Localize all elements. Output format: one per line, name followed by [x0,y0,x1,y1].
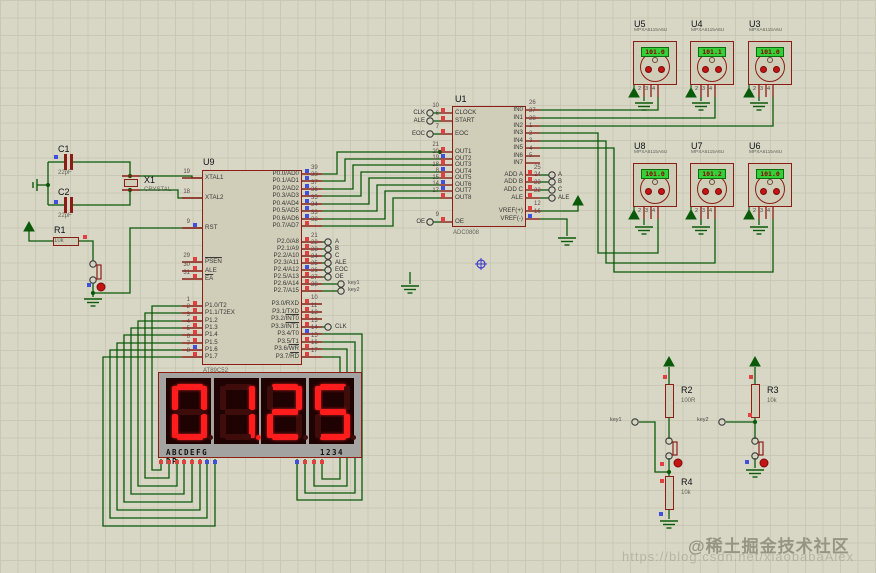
pin-number: 1 [529,123,532,129]
pin-state-square [295,460,299,464]
pin-state-square [167,460,171,464]
sensor-inc-dot[interactable] [715,188,722,195]
pin-name: P1.1/T2EX [205,310,235,316]
sensor-pin-label: 2 [695,209,698,215]
resistor-value-r3: 10k [767,398,777,404]
pin-state-square [305,237,309,241]
pin-number: 9 [166,219,190,225]
pin-state-square [528,185,532,189]
cap-value-c1: 22pF [58,170,72,176]
pin-name: XTAL2 [205,195,223,201]
pin-state-square [193,266,197,270]
pin-state-square [305,221,309,225]
pin-number: 25 [534,165,541,171]
pin-name: START [455,118,475,124]
sensor-pin-label: 2 [753,87,756,93]
pin-state-square [663,375,667,379]
segment-DP [256,435,261,440]
pin-number: 2 [166,304,190,310]
terminal[interactable] [719,419,725,425]
sensor-part-u6: MPXA6115A6U [749,151,782,156]
push-button[interactable] [759,442,763,455]
terminal[interactable] [325,324,331,330]
cap-value-c2: 22pF [58,213,72,219]
push-button-actuator[interactable] [674,459,682,467]
terminal[interactable] [325,267,331,273]
terminal[interactable] [549,195,555,201]
pin-state-square [193,323,197,327]
pin-state-square [305,184,309,188]
sensor-pin-label: 3 [702,209,705,215]
wire [540,205,578,211]
pin-number: 15 [311,333,318,339]
pin-number: 3 [166,312,190,318]
pin-number: 27 [529,108,536,114]
push-button[interactable] [673,442,677,455]
terminal[interactable] [325,246,331,252]
pin-name: IN7 [478,160,523,166]
pin-state-square [305,244,309,248]
segment-B [296,386,302,410]
wire [73,190,130,205]
wire [93,228,202,293]
display-digit-cell [309,378,354,444]
resistor-ref-r4: R4 [681,478,693,487]
pin-state-square [190,460,194,464]
pin-number: 19 [166,169,190,175]
terminal[interactable] [325,260,331,266]
segment-G [177,409,203,415]
sensor-part-u7: MPXA6115A6U [691,151,724,156]
resistor-ref-r2: R2 [681,386,693,395]
terminal[interactable] [90,261,96,267]
push-button-actuator[interactable] [97,283,105,291]
segment-F [315,386,321,410]
pin-state-square [305,258,309,262]
push-button-actuator[interactable] [760,459,768,467]
sensor-vent-circle [767,179,773,185]
pin-state-square [305,191,309,195]
terminal[interactable] [632,419,638,425]
crystal-value: CRYSTAL [144,187,171,193]
resistor-value-r2: 100R [681,398,695,404]
resistor-value-r4: 10k [681,490,691,496]
segment-DP [208,435,213,440]
power-symbol [664,357,674,366]
sensor-inc-dot[interactable] [658,188,665,195]
pin-state-square [528,170,532,174]
pin-state-square [312,460,316,464]
pin-state-square [305,329,309,333]
power-symbol [24,222,34,231]
pin-state-square [441,180,445,184]
sensor-pin-label: 4 [709,87,712,93]
sensor-pin-label: 2 [753,209,756,215]
terminal-label-B: B [335,246,339,252]
pin-number: 28 [311,282,318,288]
display-digit-cell [261,378,306,444]
pin-state-square [305,299,309,303]
sensor-dec-dot[interactable] [645,188,652,195]
pin-number: 38 [311,172,318,178]
pin-number: 10 [415,103,439,109]
pin-state-square [305,314,309,318]
pin-number: 8 [166,348,190,354]
pin-state-square [205,460,209,464]
terminal[interactable] [549,179,555,185]
adc-part: ADC0808 [453,230,479,236]
segment-A [225,384,251,390]
wire [540,97,773,126]
pin-number: 26 [529,100,536,106]
display-digit-cell [166,378,211,444]
segment-E [267,414,273,438]
wire-junction [46,183,50,187]
sensor-lcd: 101.1 [698,47,726,57]
pin-name: P3.6/WR [239,346,299,352]
pin-name: ADD B [478,179,523,185]
sensor-pin-label: 2 [638,87,641,93]
segment-A [177,384,203,390]
pin-state-square [528,206,532,210]
sensor-dec-dot[interactable] [645,66,652,73]
pin-number: 22 [534,188,541,194]
pin-name: RST [205,225,217,231]
pin-name: ALE [205,268,217,274]
pin-state-square [305,206,309,210]
sensor-dec-dot[interactable] [702,66,709,73]
terminal[interactable] [427,219,433,225]
pin-state-square [305,176,309,180]
sensor-pin-label: 4 [709,209,712,215]
watermark-url: https://blog.csdn.net/xiaobabaAlex [622,549,854,564]
terminal[interactable] [338,288,344,294]
pin-state-square [305,169,309,173]
pin-state-square [87,283,91,287]
pin-state-square [305,265,309,269]
terminal[interactable] [549,187,555,193]
pin-state-square [305,344,309,348]
resistor-r2[interactable] [665,384,674,418]
segment-F [267,386,273,410]
pin-number: 21 [415,142,439,148]
pin-name: IN0 [478,107,523,113]
terminal-label-B: B [558,179,562,185]
capacitor-c2[interactable] [64,197,67,213]
pin-state-square [305,214,309,218]
pin-number: 36 [311,187,318,193]
pin-state-square [305,279,309,283]
terminal-label-key2: key2 [348,288,360,294]
pin-number: 26 [311,268,318,274]
sensor-vent-circle [709,179,715,185]
pin-number: 6 [415,111,439,117]
sensor-lcd: 101.0 [756,47,784,57]
pin-state-square [83,235,87,239]
terminal[interactable] [325,239,331,245]
pin-name: P2.7/A15 [239,288,299,294]
sensor-vent-circle [767,57,773,63]
pin-number: 32 [311,217,318,223]
segment-G [320,409,346,415]
capacitor-c1[interactable] [70,154,73,170]
pin-number: 14 [311,325,318,331]
pin-state-square [193,308,197,312]
sensor-pin-label: 4 [767,87,770,93]
pin-state-square [441,173,445,177]
pin-number: 7 [415,124,439,130]
terminal[interactable] [325,253,331,259]
pin-state-square [175,460,179,464]
sensor-pin-label: 2 [638,209,641,215]
sensor-lcd: 101.0 [641,169,669,179]
crystal-ref: X1 [144,176,155,185]
pin-number: 12 [534,201,541,207]
pin-state-square [660,462,664,466]
wire [73,162,130,176]
pin-state-square [305,286,309,290]
pin-state-square [320,460,324,464]
pin-state-square [193,345,197,349]
pin-state-square [441,154,445,158]
segment-B [249,386,255,410]
pin-number: 29 [166,253,190,259]
wire-junction [753,420,757,424]
pin-number: 25 [311,261,318,267]
pin-number: 8 [415,168,439,174]
pin-name: VREF(+) [478,208,523,214]
pin-number: 21 [311,233,318,239]
terminal[interactable] [549,172,555,178]
segment-D [272,434,298,440]
sensor-pin-label: 4 [652,209,655,215]
pin-name: P0.5/AD5 [239,208,299,214]
pin-state-square [441,160,445,164]
resistor-ref-r3: R3 [767,386,779,395]
pin-name: PSEN [205,259,222,265]
pin-number: 35 [311,195,318,201]
push-button[interactable] [97,265,101,279]
sensor-dec-dot[interactable] [702,188,709,195]
pin-name: OE [455,219,464,225]
pin-number: 16 [534,209,541,215]
resistor-ref-r1: R1 [54,226,66,235]
sensor-inc-dot[interactable] [658,66,665,73]
segment-DP [351,435,356,440]
pin-state-square [213,460,217,464]
sensor-dec-dot[interactable] [760,188,767,195]
wire-layer [0,0,876,573]
pin-name: P0.1/AD1 [239,178,299,184]
pin-number: 31 [166,270,190,276]
pin-state-square [305,272,309,276]
pin-number: 39 [311,165,318,171]
terminal[interactable] [427,131,433,137]
pin-number: 7 [166,341,190,347]
pin-state-square [305,199,309,203]
pin-state-square [441,217,445,221]
terminal-label-OE: OE [375,219,425,225]
pin-number: 10 [311,295,318,301]
segment-E [220,414,226,438]
resistor-value-r1: 10k [54,238,64,244]
pin-name: XTAL1 [205,175,223,181]
pin-number: 30 [166,262,190,268]
segment-B [344,386,350,410]
pin-state-square [660,479,664,483]
pin-number: 24 [534,172,541,178]
pin-number: 5 [166,326,190,332]
terminal[interactable] [338,281,344,287]
pin-state-square [748,413,752,417]
terminal-label-key1: key1 [610,418,622,424]
wire [639,422,669,472]
pin-state-square [182,460,186,464]
sensor-pin-label: 4 [652,87,655,93]
segment-B [201,386,207,410]
resistor-r4[interactable] [665,476,674,510]
capacitor-c1[interactable] [64,154,67,170]
pin-state-square [193,257,197,261]
wire-junction [667,470,671,474]
pin-state-square [441,167,445,171]
sensor-lcd: 101.0 [641,47,669,57]
sensor-part-u4: MPXA6115A6U [691,29,724,34]
terminal-label-C: C [335,253,339,259]
power-symbol [750,357,760,366]
pin-name: ALE [478,195,523,201]
pin-name: P0.3/AD3 [239,193,299,199]
pin-name: P1.7 [205,354,218,360]
pin-name: P3.4/T0 [239,331,299,337]
pin-state-square [54,200,58,204]
pin-name: EOC [455,131,468,137]
mcu-ref: U9 [203,158,215,167]
pin-number: 22 [311,240,318,246]
pin-state-square [528,214,532,218]
terminal[interactable] [325,274,331,280]
pin-state-square [193,223,197,227]
pin-number: 13 [311,318,318,324]
pin-name: IN1 [478,115,523,121]
wire [79,241,93,261]
pin-number: 5 [529,153,532,159]
pin-state-square [305,251,309,255]
pin-number: 12 [311,310,318,316]
pin-state-square [198,460,202,464]
crystal-x1[interactable] [124,179,138,187]
sensor-pin-label: 2 [695,87,698,93]
sensor-vent-circle [652,57,658,63]
pin-state-square [305,307,309,311]
pin-state-square [659,512,663,516]
pin-name: ADD C [478,187,523,193]
pin-number: 17 [415,188,439,194]
pin-number: 6 [166,334,190,340]
pin-state-square [54,155,58,159]
pin-state-square [441,129,445,133]
pin-name: P3.0/RXD [239,301,299,307]
pin-name: IN3 [478,130,523,136]
capacitor-c2[interactable] [70,197,73,213]
pin-number: 28 [529,116,536,122]
terminal-label-EOC: EOC [375,131,425,137]
pin-number: 2 [529,131,532,137]
display-digit-label: 1234 [320,448,344,457]
pin-number: 3 [529,138,532,144]
segment-A [320,384,346,390]
sensor-pin-label: 3 [760,87,763,93]
sensor-inc-dot[interactable] [773,188,780,195]
pin-name: P3.2/INT0 [239,316,299,322]
sensor-dec-dot[interactable] [760,66,767,73]
pin-state-square [193,301,197,305]
pin-state-square [159,460,163,464]
terminal-label-EOC: EOC [335,267,348,273]
terminal-label-A: A [558,172,562,178]
segment-D [320,434,346,440]
pin-number: 11 [311,303,317,309]
terminal-label-ALE: ALE [558,195,569,201]
pin-state-square [193,352,197,356]
segment-G [225,409,251,415]
pin-name: CLOCK [455,110,476,116]
pin-state-square [528,177,532,181]
segment-G [272,409,298,415]
pin-state-square [193,338,197,342]
pin-number: 23 [534,180,541,186]
pin-number: 19 [415,155,439,161]
segment-D [177,434,203,440]
sensor-part-u3: MPXA6115A6U [749,29,782,34]
pin-state-square [193,274,197,278]
schematic-canvas: key1key2U9AT89C52U1ADC0808XTAL119XTAL218… [0,0,876,573]
pin-name: VREF(-) [478,216,523,222]
segment-F [220,386,226,410]
pin-number: 4 [529,146,532,152]
sensor-pin-label: 3 [645,87,648,93]
pin-name: IN5 [478,145,523,151]
pin-number: 4 [166,319,190,325]
segment-D [225,434,251,440]
pin-state-square [305,337,309,341]
pin-state-square [441,116,445,120]
sensor-inc-dot[interactable] [773,66,780,73]
pin-number: 17 [311,348,318,354]
pin-state-square [193,316,197,320]
cap-ref-c1: C1 [58,145,70,154]
sensor-inc-dot[interactable] [715,66,722,73]
sensor-pin-label: 4 [767,209,770,215]
adc-ref: U1 [455,95,467,104]
sensor-vent-circle [709,57,715,63]
pin-state-square [749,375,753,379]
sensor-pin-label: 3 [760,209,763,215]
cap-ref-c2: C2 [58,188,70,197]
display-digit-cell [214,378,259,444]
pin-number: 33 [311,210,318,216]
wire [540,219,567,236]
resistor-r3[interactable] [751,384,760,418]
pin-name: P0.7/AD7 [239,223,299,229]
pin-name: P3.7/RD [239,354,299,360]
pin-state-square [305,322,309,326]
pin-state-square [303,460,307,464]
pin-number: 24 [311,254,318,260]
terminal-label-ALE: ALE [335,260,346,266]
terminal-label-CLK: CLK [335,324,347,330]
terminal-label-A: A [335,239,339,245]
